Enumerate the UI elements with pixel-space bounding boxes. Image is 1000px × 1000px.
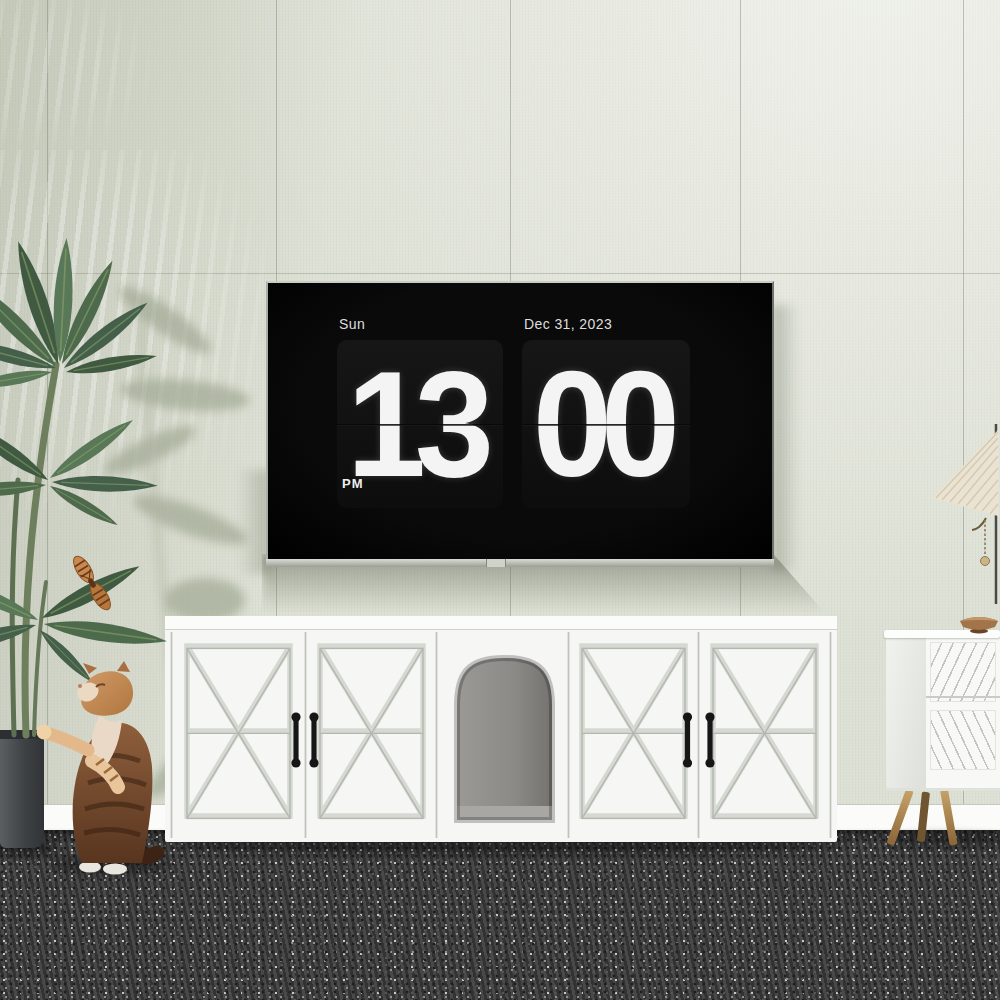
tv-bottom-bezel — [266, 559, 774, 567]
cat — [30, 655, 170, 875]
clock-minute-digits: 00 — [532, 349, 679, 499]
living-room-scene: Sun Dec 31, 2023 13 00 PM — [0, 0, 1000, 1000]
cat-foot — [103, 864, 127, 875]
cat-ear — [117, 661, 130, 672]
clock-meridiem-label: PM — [342, 476, 364, 491]
tv-shadow — [772, 305, 800, 571]
cabinet-bottom-edge — [886, 788, 1000, 791]
cabinet-drawer-bottom — [930, 710, 996, 770]
lamp-arm — [972, 518, 986, 530]
cabinet-drawer-top — [930, 642, 996, 702]
cat-ear — [83, 663, 97, 674]
cabinet-leg — [917, 792, 930, 843]
tv-stand — [165, 616, 837, 842]
tv-stand-top — [165, 616, 837, 630]
barn-door-3 — [582, 646, 685, 818]
clock-day-label: Sun — [339, 316, 365, 332]
cabinet-side-panel — [886, 638, 926, 788]
cabinet-front — [926, 638, 1000, 788]
leaf-cluster-middle — [0, 414, 158, 530]
cat-paw — [37, 725, 52, 740]
clock-hour-digits: 13 — [346, 349, 493, 499]
flip-clock-minute-card: 00 — [522, 340, 690, 508]
leaf-cluster-top — [0, 237, 158, 392]
cat-nose — [78, 684, 82, 688]
cat-house-arch-opening — [457, 658, 552, 820]
wooden-bowl — [958, 613, 1000, 635]
cabinet-drawer-gap — [926, 696, 1000, 698]
cabinet-leg — [940, 789, 958, 846]
clock-date-label: Dec 31, 2023 — [524, 316, 612, 332]
butterfly — [66, 552, 118, 614]
lamp-chain-ball — [981, 557, 990, 566]
barn-door-2 — [320, 646, 423, 818]
barn-door-4 — [713, 646, 816, 818]
cat-front-leg-raised — [46, 733, 88, 750]
floor-lamp — [928, 424, 1000, 606]
blinds-light-pattern — [0, 0, 150, 150]
door-handle — [291, 712, 300, 767]
side-cabinet — [884, 630, 1000, 846]
door-handle — [309, 712, 318, 767]
tv-stand-doors — [165, 630, 837, 842]
tv-mount-notch — [486, 559, 506, 567]
cat-foot — [79, 862, 101, 873]
cabinet-leg — [886, 789, 913, 846]
tv-screen-flip-clock: Sun Dec 31, 2023 13 00 PM — [268, 283, 772, 559]
